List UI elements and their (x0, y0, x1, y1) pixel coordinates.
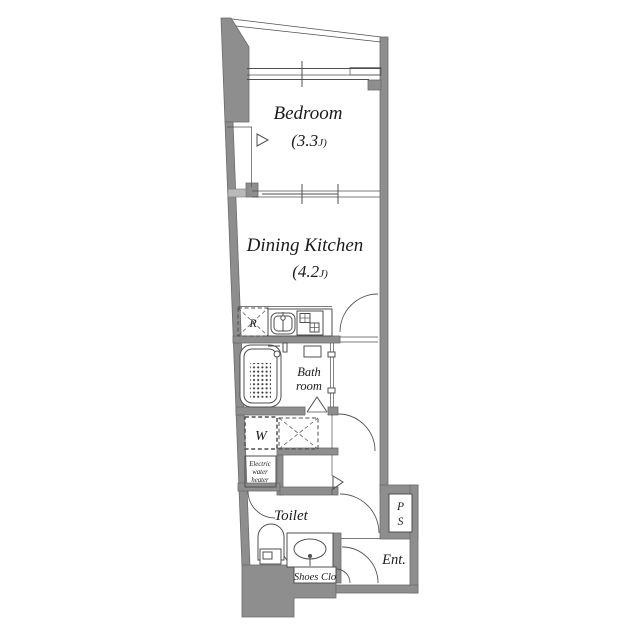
wall-window-end-stub (368, 80, 381, 90)
partition-bedroom-dk (252, 184, 380, 204)
kitchen-sink-icon (271, 312, 295, 334)
closet-door-triangle-icon (257, 134, 268, 146)
entrance-door-arc (342, 547, 378, 583)
washer-pan-alt (279, 418, 318, 449)
bath-mat (250, 363, 271, 399)
pipe-space-label-s: S (398, 516, 404, 528)
washroom-door-arc (338, 414, 375, 451)
wash-basin-icon (287, 533, 333, 567)
wall-kitchen-bottom (233, 336, 340, 343)
water-heater-label-line1: Electric (248, 461, 271, 468)
heater-door-arc (248, 491, 275, 518)
dk-door (340, 294, 378, 342)
wall-right (380, 37, 388, 493)
wall-entrance-bottom (336, 585, 418, 593)
floor-plan-page: Bedroom (3.3J) Dining Kitchen (4.2J) R B… (0, 0, 640, 640)
bathtub-icon (240, 343, 287, 407)
bathroom-label-line2: room (296, 379, 322, 393)
bedroom-label: Bedroom (274, 103, 343, 124)
bath-counter (304, 346, 321, 357)
bath-fold-door-icon (307, 397, 327, 412)
bathroom-label-line1: Bath (297, 365, 321, 379)
wall-toilet-top (280, 487, 338, 495)
pipe-space-label-p: P (396, 501, 404, 513)
wall-partition-stub (246, 183, 258, 197)
wall-bath-bottom-stub (328, 407, 338, 415)
toilet-room (258, 494, 379, 567)
water-heater-label-line3: heater (251, 477, 269, 484)
toilet-icon (258, 524, 291, 566)
dining-kitchen-area-label: (4.2J) (292, 262, 328, 281)
bedroom-window (247, 61, 381, 87)
wall-bath-bottom (236, 407, 305, 415)
refrigerator-label: R (248, 316, 257, 330)
washer-label: W (255, 429, 268, 444)
toilet-label: Toilet (274, 508, 308, 524)
shoes-closet-label: Shoes Clo (294, 572, 336, 583)
dk-door-arc (340, 294, 378, 332)
floor-plan: Bedroom (3.3J) Dining Kitchen (4.2J) R B… (0, 0, 640, 640)
wall-hatch-band (228, 189, 246, 197)
bedroom-area-label: (3.3J) (291, 131, 327, 150)
toilet-door-arc (340, 494, 379, 533)
entrance-label: Ent. (381, 552, 406, 568)
stove-icon (297, 311, 323, 335)
wall-left-column (221, 18, 249, 122)
water-heater-label-line2: water (252, 469, 268, 476)
balcony-edge (232, 19, 381, 42)
dining-kitchen-label: Dining Kitchen (246, 235, 364, 256)
